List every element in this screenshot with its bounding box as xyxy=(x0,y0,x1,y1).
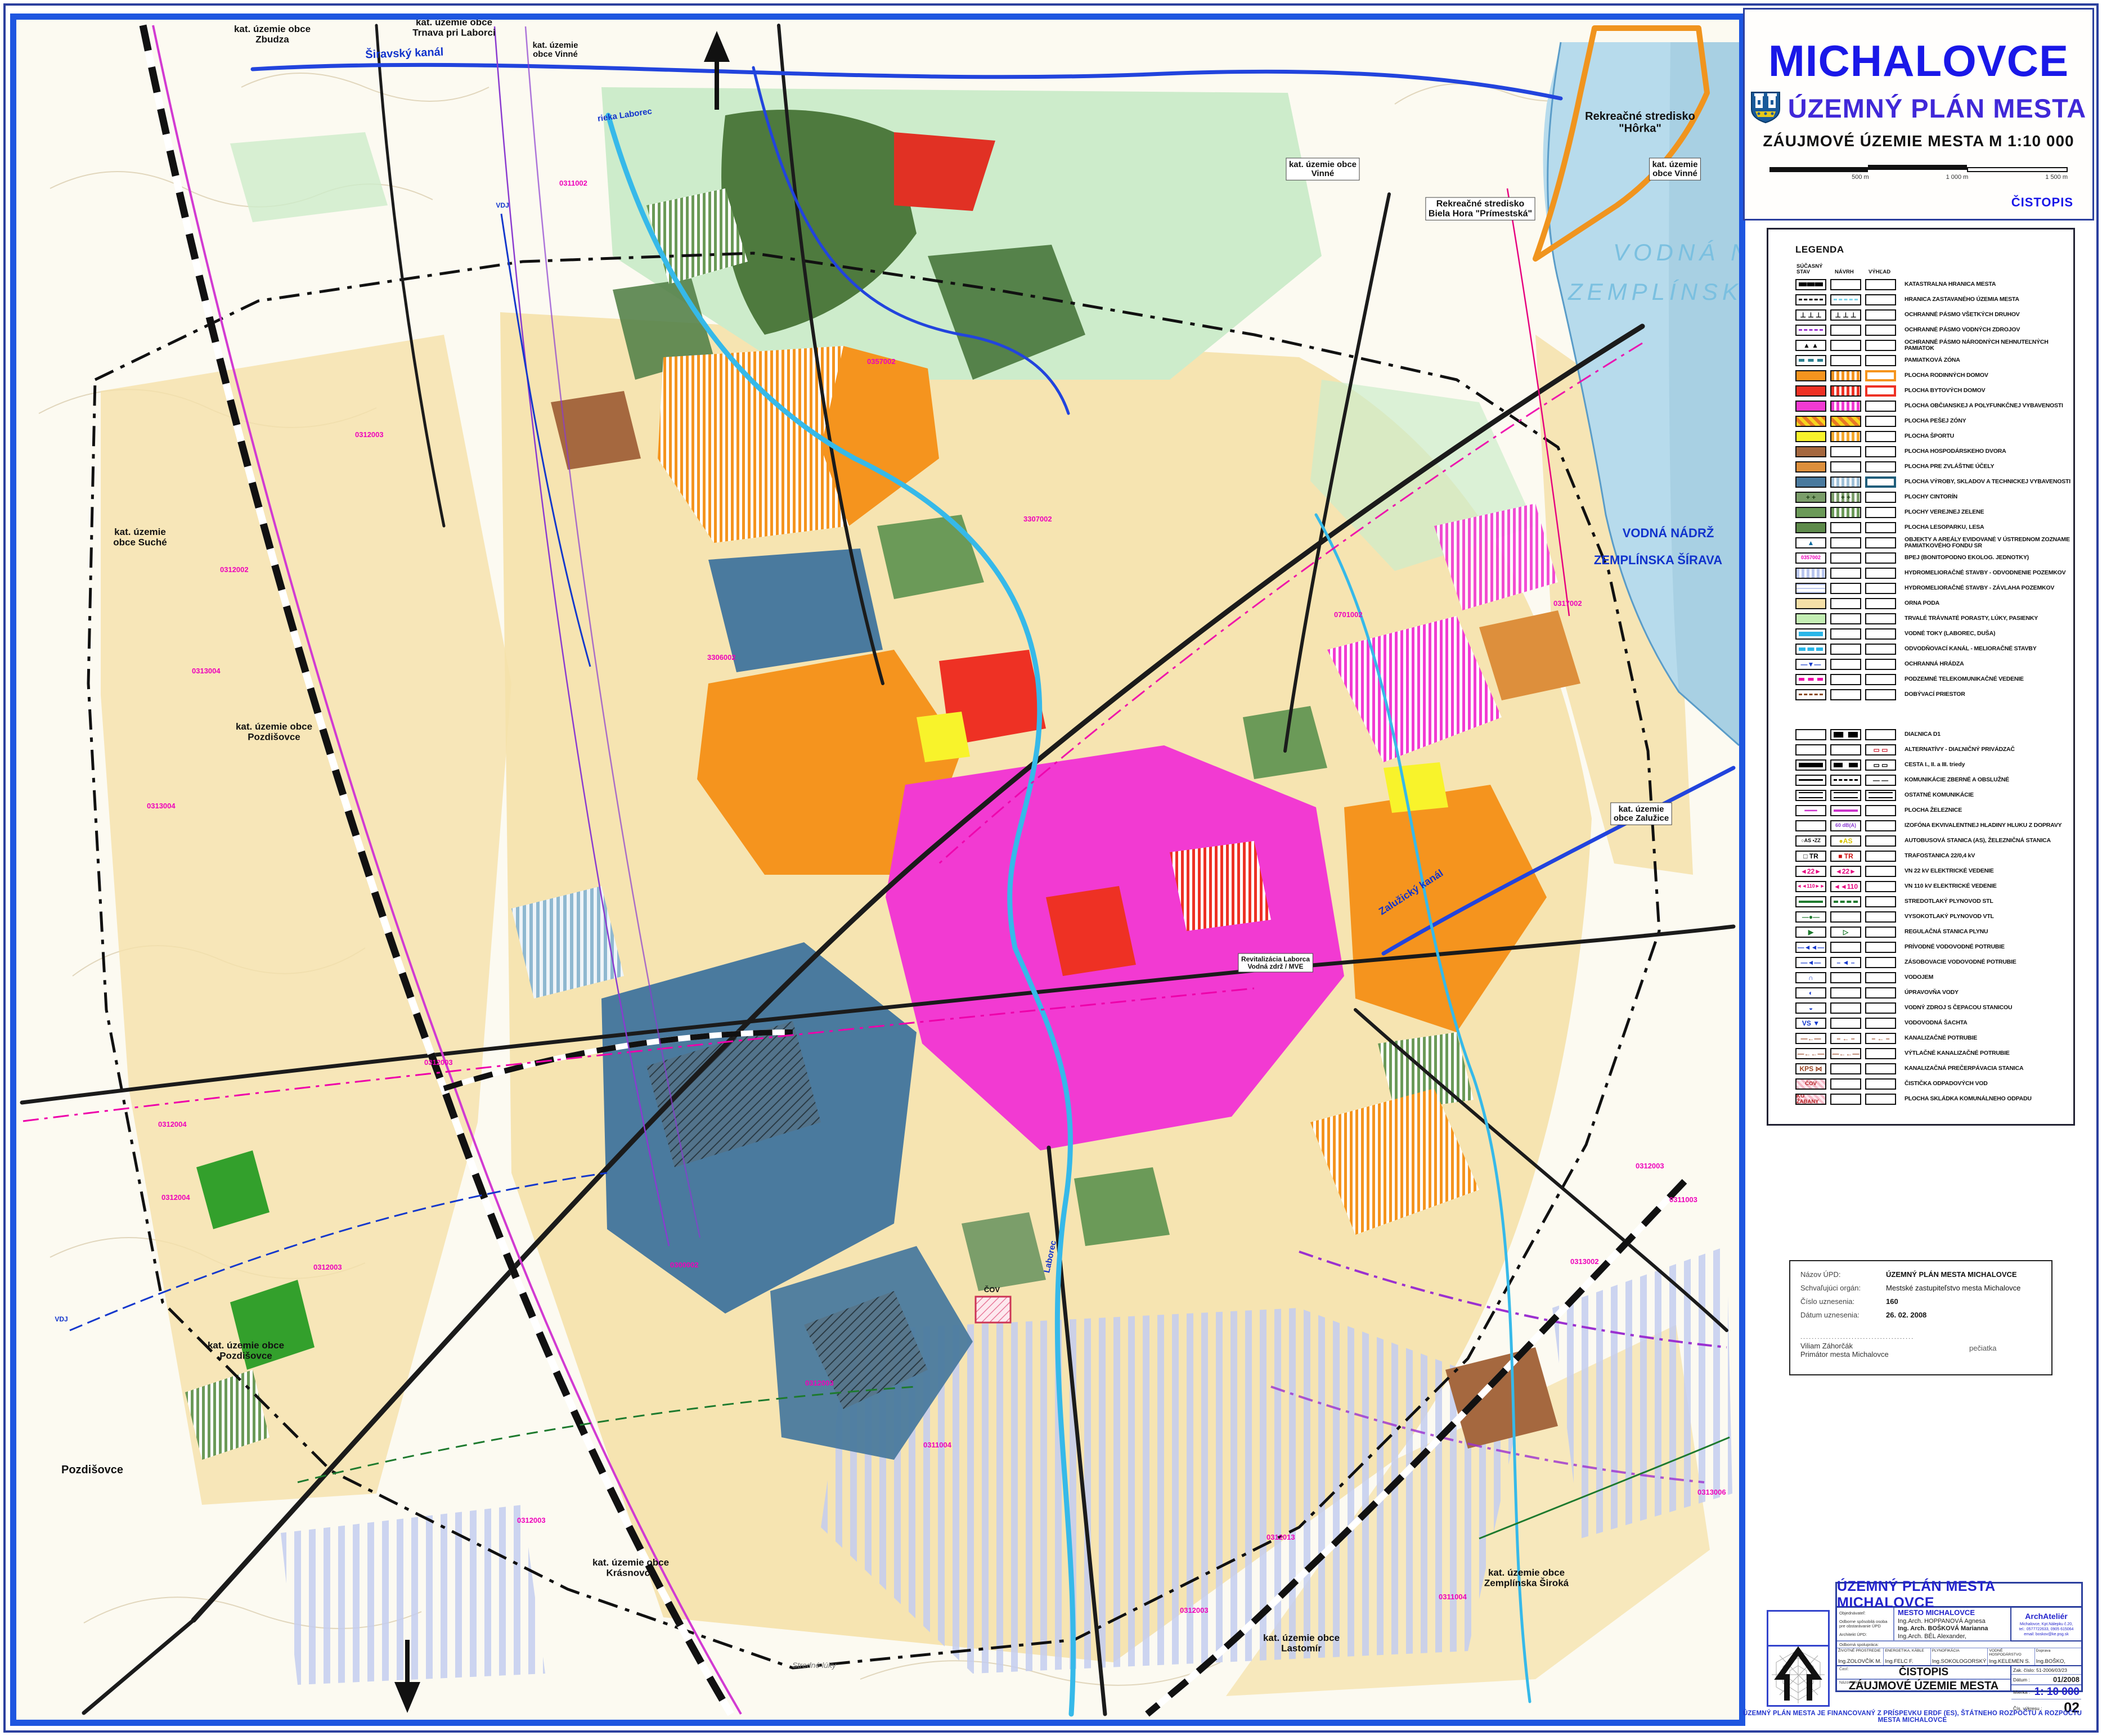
map-label: ČOV xyxy=(984,1285,1000,1294)
legend-row-label: VN 110 kV ELEKTRICKÉ VEDENIE xyxy=(1905,883,1997,889)
legend-swatch xyxy=(1830,729,1861,740)
legend-swatch: 0357002 xyxy=(1795,552,1826,564)
legend-row-label: VN 22 kV ELEKTRICKÉ VEDENIE xyxy=(1905,868,1994,874)
legend-swatch xyxy=(1865,851,1896,862)
map-label: kat. územieobce Vinné xyxy=(1652,160,1698,178)
legend-swatch: – ← – xyxy=(1865,1033,1896,1044)
bpej-code: 0313006 xyxy=(1697,1488,1726,1496)
legend-swatch: — — xyxy=(1865,775,1896,786)
firm-email: email: boskov@ke.psg.sk xyxy=(2014,1632,2079,1638)
datum-value: 01/2008 xyxy=(2053,1675,2079,1684)
architekt-name-2: Ing.Arch. BÉL Alexander, xyxy=(1898,1633,2010,1640)
legend-row-label: PLOCHY CINTORÍN xyxy=(1905,494,1957,500)
mierka-label: Mierka : xyxy=(2013,1689,2030,1695)
coop-name: Ing.SOKOLOGORSKÝ xyxy=(1932,1658,1987,1665)
coop-label: Odborná spolupráca: xyxy=(1837,1641,2081,1648)
legend-swatch: ━━━ xyxy=(1795,805,1826,816)
legend-swatch xyxy=(1830,805,1861,816)
legend-swatch: ▲ ▲ xyxy=(1795,340,1826,351)
coop-field: Doprava xyxy=(2036,1649,2080,1653)
legend-swatch: ○AS ▪ZZ xyxy=(1795,835,1826,847)
nazov-label: Názov výkresu : xyxy=(1839,1681,1867,1685)
legend-swatch: ■ TR xyxy=(1830,851,1861,862)
legend-row-label: OCHRANNÉ PÁSMO VODNÝCH ZDROJOV xyxy=(1905,327,2020,333)
legend-row: —◄—– ◄ –ZÁSOBOVACIE VODOVODNÉ POTRUBIE xyxy=(1768,955,2073,970)
legend-row-label: ALTERNATÍVY - DIAĽNIČNÝ PRIVÁDZAČ xyxy=(1905,746,2015,753)
legend-swatch xyxy=(1830,1063,1861,1074)
legend-swatch xyxy=(1865,279,1896,290)
status-label: ČISTOPIS xyxy=(1745,195,2073,210)
legend-row-label: VODOVODNÁ ŠACHTA xyxy=(1905,1020,1968,1026)
legend-swatch xyxy=(1830,476,1861,488)
coop-field: ŽIVOTNÉ PROSTREDIE xyxy=(1838,1649,1882,1653)
legend-swatch: 60 dB(A) xyxy=(1830,820,1861,831)
approval-box: Názov ÚPD:ÚZEMNÝ PLÁN MESTA MICHALOVCESc… xyxy=(1789,1260,2052,1375)
legend-swatch xyxy=(1795,507,1826,518)
coop-name: Ing.BOŠKO, xyxy=(2036,1658,2080,1665)
legend-swatch xyxy=(1865,729,1896,740)
legend-swatch xyxy=(1830,987,1861,999)
legend-row-label: CESTA I., II. a III. triedy xyxy=(1905,762,1965,768)
legend-swatch: KO ŽABANY xyxy=(1795,1094,1826,1105)
legend-row-label: PLOCHA HOSPODÁRSKEHO DVORA xyxy=(1905,448,2006,455)
zak-label: Zak. číslo: xyxy=(2013,1667,2035,1673)
bpej-code: 0317002 xyxy=(1553,599,1582,608)
legend-swatch xyxy=(1795,744,1826,755)
legend-swatch xyxy=(1865,896,1896,907)
legend-swatch xyxy=(1865,309,1896,321)
legend-line-rows: DIAĽNICA D1▭ ▭ALTERNATÍVY - DIAĽNIČNÝ PR… xyxy=(1768,727,2073,1107)
signature-name: Viliam Záhorčák xyxy=(1800,1342,2051,1350)
bpej-code: 0311003 xyxy=(1669,1195,1697,1204)
legend-swatch xyxy=(1830,431,1861,442)
bpej-code: 0312004 xyxy=(161,1193,190,1202)
legend-row-label: ODVODŇOVACÍ KANÁL - MELIORAČNÉ STAVBY xyxy=(1905,646,2037,652)
legend-row-label: PLOCHA LESOPARKU, LESA xyxy=(1905,524,1984,530)
legend-swatch: —◄— xyxy=(1795,957,1826,968)
legend-swatch xyxy=(1865,790,1896,801)
scale-segment xyxy=(1769,167,1868,172)
stamp-label: pečiatka xyxy=(1969,1344,1996,1352)
legend-row-label: PLOCHA ŠPORTU xyxy=(1905,433,1954,439)
legend-swatch xyxy=(1865,583,1896,594)
approval-row-value: 26. 02. 2008 xyxy=(1886,1311,1926,1319)
legend-row: DIAĽNICA D1 xyxy=(1768,727,2073,742)
legend-swatch xyxy=(1830,790,1861,801)
bpej-code: 0311004 xyxy=(923,1441,952,1449)
legend-row: ORNA PODA xyxy=(1768,596,2073,611)
legend-row-label: KANALIZAČNÉ POTRUBIE xyxy=(1905,1035,1977,1041)
legend-title: LEGENDA xyxy=(1795,244,2073,255)
legend-swatch xyxy=(1865,537,1896,548)
legend-row-label: VODNÝ ZDROJ S ČEPACOU STANICOU xyxy=(1905,1005,2012,1011)
legend-swatch xyxy=(1865,866,1896,877)
bpej-code: 0311002 xyxy=(559,179,587,187)
legend-swatch: ▲ xyxy=(1795,537,1826,548)
bpej-code: 0312003 xyxy=(517,1516,546,1524)
legend-swatch xyxy=(1830,340,1861,351)
legend-swatch xyxy=(1795,476,1826,488)
map-label: kat. územie obceTrnava pri Laborci xyxy=(412,20,495,38)
legend-row: + ++ +PLOCHY CINTORÍN xyxy=(1768,489,2073,505)
scale-segment xyxy=(1868,165,1966,170)
legend-swatch xyxy=(1830,507,1861,518)
legend-row-label: REGULAČNÁ STANICA PLYNU xyxy=(1905,929,1988,935)
legend-swatch xyxy=(1865,1063,1896,1074)
legend-swatch xyxy=(1830,598,1861,609)
map-label: kat. územieobce Zalužice xyxy=(1614,804,1669,823)
coop-cell: DopravaIng.BOŠKO, xyxy=(2035,1648,2081,1665)
legend-swatch xyxy=(1795,689,1826,700)
legend-swatch xyxy=(1865,1048,1896,1059)
legend-swatch xyxy=(1830,942,1861,953)
legend-row-label: HYDROMELIORAČNÉ STAVBY - ZÁVLAHA POZEMKO… xyxy=(1905,585,2054,591)
legend-row-label: HYDROMELIORAČNÉ STAVBY - ODVODNENIE POZE… xyxy=(1905,570,2065,576)
legend-swatch xyxy=(1830,628,1861,640)
legend-swatch xyxy=(1865,355,1896,366)
legend-swatch xyxy=(1865,613,1896,624)
legend-swatch xyxy=(1795,674,1826,685)
signature-line: ........................................ xyxy=(1800,1334,2051,1341)
legend-swatch xyxy=(1795,446,1826,457)
legend-row: ◒VODNÝ ZDROJ S ČEPACOU STANICOU xyxy=(1768,1000,2073,1015)
legend-swatch xyxy=(1865,492,1896,503)
legend-swatch xyxy=(1830,401,1861,412)
approval-row-label: Názov ÚPD: xyxy=(1800,1270,1886,1279)
legend-swatch: —●— xyxy=(1795,911,1826,923)
firm-phone: tel.: 0577722633, 0905 615064 xyxy=(2014,1627,2079,1632)
approval-row-label: Schvaľujúci orgán: xyxy=(1800,1284,1886,1292)
approval-row: Dátum uznesenia:26. 02. 2008 xyxy=(1800,1311,2051,1319)
legend-swatch xyxy=(1865,340,1896,351)
legend-col-navrh: NÁVRH xyxy=(1835,269,1854,275)
legend-swatch xyxy=(1865,385,1896,397)
legend-swatch xyxy=(1830,583,1861,594)
legend-row-label: PODZEMNÉ TELEKOMUNIKAČNÉ VEDENIE xyxy=(1905,676,2024,682)
legend-swatch: ∩ xyxy=(1795,972,1826,983)
map-label: kat. územieobce Suché xyxy=(113,527,167,547)
coop-name: Ing.KELEMEN S. xyxy=(1989,1658,2033,1665)
legend-swatch xyxy=(1865,659,1896,670)
legend-row: HYDROMELIORAČNÉ STAVBY - ZÁVLAHA POZEMKO… xyxy=(1768,581,2073,596)
legend-row-label: OCHRANNÉ PÁSMO NÁRODNÝCH NEHNUTEĽNÝCH PA… xyxy=(1905,339,2073,352)
legend-swatch xyxy=(1830,659,1861,670)
legend-swatch: + + xyxy=(1795,492,1826,503)
legend-row: ○AS ▪ZZ●ASAUTOBUSOVÁ STANICA (AS), ŽELEZ… xyxy=(1768,833,2073,848)
datum-label: Dátum : xyxy=(2013,1677,2030,1683)
legend-swatch xyxy=(1795,401,1826,412)
legend-swatch xyxy=(1830,744,1861,755)
map-label: VDJ xyxy=(496,201,509,209)
legend-swatch xyxy=(1830,1078,1861,1090)
drawing-name: ZÁUJMOVÉ ÚZEMIE MESTA xyxy=(1849,1680,1998,1693)
bpej-code: 0311004 xyxy=(1439,1593,1467,1601)
map-label: Revitalizácia LaborcaVodná zdrž / MVE xyxy=(1241,955,1310,970)
legend-row: ∩VODOJEM xyxy=(1768,970,2073,985)
legend-swatch xyxy=(1830,325,1861,336)
legend-swatch xyxy=(1795,598,1826,609)
firm-address: Michalovce, Kpt.Nálepku č.20, xyxy=(2014,1622,2079,1627)
legend-swatch xyxy=(1830,972,1861,983)
title-block: ÚZEMNÝ PLÁN MESTA MICHALOVCE Objednávate… xyxy=(1835,1582,2083,1692)
legend-swatch xyxy=(1865,522,1896,533)
legend-swatch xyxy=(1830,568,1861,579)
approval-row: Názov ÚPD:ÚZEMNÝ PLÁN MESTA MICHALOVCE xyxy=(1800,1270,2051,1279)
legend-swatch xyxy=(1865,1078,1896,1090)
legend-row-label: OSTATNÉ KOMUNIKÁCIE xyxy=(1905,792,1974,798)
legend-swatch xyxy=(1865,446,1896,457)
legend-row-label: TRAFOSTANICA 22/0,4 kV xyxy=(1905,853,1975,859)
legend-swatch xyxy=(1830,1094,1861,1105)
legend-row-label: AUTOBUSOVÁ STANICA (AS), ŽELEZNIČNÁ STAN… xyxy=(1905,838,2051,844)
legend-row: KO ŽABANYPLOCHA SKLÁDKA KOMUNÁLNEHO ODPA… xyxy=(1768,1091,2073,1107)
legend-row-label: VODNÉ TOKY (LABOREC, DUŠA) xyxy=(1905,631,1995,637)
legend-swatch xyxy=(1795,522,1826,533)
legend-swatch xyxy=(1830,689,1861,700)
legend-swatch xyxy=(1795,820,1826,831)
map-label: Rekreačné strediskoBiela Hora "Prímestsk… xyxy=(1429,199,1532,218)
legend-swatch: —←←— xyxy=(1830,1048,1861,1059)
legend-row-label: PRÍVODNÉ VODOVODNÉ POTRUBIE xyxy=(1905,944,2005,950)
map-label: VODNÁ N xyxy=(1613,239,1739,266)
plan-title: ÚZEMNÝ PLÁN MESTA xyxy=(1788,93,2087,124)
legend-swatch: – ◄ – xyxy=(1830,957,1861,968)
osoba-label: Odborne spôsobilá osoba pre obstarávanie… xyxy=(1839,1620,1892,1629)
legend-row: VODNÉ TOKY (LABOREC, DUŠA) xyxy=(1768,626,2073,641)
legend-row: — —KOMUNIKÁCIE ZBERNÉ A OBSLUŽNÉ xyxy=(1768,772,2073,788)
bpej-code: 0312003 xyxy=(1180,1606,1209,1614)
city-crest-icon xyxy=(1751,90,1780,127)
title-block-heading: ÚZEMNÝ PLÁN MESTA MICHALOVCE xyxy=(1837,1584,2081,1608)
legend-panel: LEGENDA SÚČASNÝ STAV NÁVRH VÝHĽAD KATAST… xyxy=(1767,228,2075,1126)
approval-row-label: Číslo uznesenia: xyxy=(1800,1297,1886,1306)
legend-swatch xyxy=(1830,613,1861,624)
legend-swatch: —◄◄— xyxy=(1795,942,1826,953)
sheet-subtitle: ZÁUJMOVÉ ÚZEMIE MESTA M 1:10 000 xyxy=(1745,132,2092,150)
legend-row-label: KATASTRALNA HRANICA MESTA xyxy=(1905,281,1996,287)
mierka-value: 1: 10 000 xyxy=(2034,1686,2079,1698)
legend-swatch xyxy=(1865,972,1896,983)
legend-swatch xyxy=(1830,674,1861,685)
legend-swatch: VS ▼ xyxy=(1795,1018,1826,1029)
legend-row: HYDROMELIORAČNÉ STAVBY - ODVODNENIE POZE… xyxy=(1768,565,2073,581)
legend-swatch xyxy=(1795,896,1826,907)
coop-field: VODNÉ HOSPODÁRSTVO xyxy=(1989,1649,2033,1657)
legend-swatch xyxy=(1865,644,1896,655)
legend-swatch xyxy=(1865,674,1896,685)
legend-row: —←—– ← –– ← –KANALIZAČNÉ POTRUBIE xyxy=(1768,1031,2073,1046)
zak-value: 51-2006/03/23 xyxy=(2036,1667,2067,1673)
bpej-code: 0312013 xyxy=(1266,1533,1295,1541)
legend-swatch xyxy=(1795,279,1826,290)
approval-row: Číslo uznesenia:160 xyxy=(1800,1297,2051,1306)
bpej-code: 0312003 xyxy=(805,1379,834,1387)
legend-swatch xyxy=(1795,416,1826,427)
coop-name: Ing.ZOLOVČÍK M. xyxy=(1838,1658,1882,1665)
bpej-code: 0312004 xyxy=(158,1120,187,1128)
legend-row: —←←——←←—VÝTLAČNÉ KANALIZAČNÉ POTRUBIE xyxy=(1768,1046,2073,1061)
client-name: MESTO MICHALOVCE xyxy=(1898,1608,2010,1617)
legend-swatch xyxy=(1830,552,1861,564)
legend-row-label: VÝTLAČNÉ KANALIZAČNÉ POTRUBIE xyxy=(1905,1050,2010,1056)
legend-swatch xyxy=(1865,957,1896,968)
legend-row: PLOCHA OBČIANSKEJ A POLYFUNKČNEJ VYBAVEN… xyxy=(1768,398,2073,413)
legend-row: ━━━PLOCHA ŽELEZNICE xyxy=(1768,803,2073,818)
legend-swatch xyxy=(1795,431,1826,442)
legend-swatch xyxy=(1795,355,1826,366)
scale-label: 500 m xyxy=(1769,174,1869,181)
legend-swatch: ČOV xyxy=(1795,1078,1826,1090)
legend-swatch xyxy=(1865,416,1896,427)
approval-row-label: Dátum uznesenia: xyxy=(1800,1311,1886,1319)
legend-swatch: —←— xyxy=(1795,1033,1826,1044)
legend-swatch: + + xyxy=(1830,492,1861,503)
legend-swatch xyxy=(1795,461,1826,473)
legend-swatch: □ TR xyxy=(1795,851,1826,862)
north-box-empty-cell xyxy=(1768,1612,1828,1647)
map-label: VDJ xyxy=(55,1315,68,1323)
scale-label: 1 000 m xyxy=(1869,174,1969,181)
legend-row-label: DOBÝVACÍ PRIESTOR xyxy=(1905,691,1965,698)
legend-row: HRANICA ZASTAVANÉHO ÚZEMIA MESTA xyxy=(1768,292,2073,307)
legend-row: PODZEMNÉ TELEKOMUNIKAČNÉ VEDENIE xyxy=(1768,672,2073,687)
legend-swatch xyxy=(1795,385,1826,397)
legend-swatch xyxy=(1865,805,1896,816)
legend-swatch xyxy=(1795,294,1826,305)
legend-row: PLOCHA ŠPORTU xyxy=(1768,429,2073,444)
map-label: VODNÁ NÁDRŽ xyxy=(1623,526,1714,540)
legend-row-label: HRANICA ZASTAVANÉHO ÚZEMIA MESTA xyxy=(1905,296,2019,303)
plan-sheet: kat. územie obceZbudzakat. územie obceTr… xyxy=(0,0,2102,1736)
legend-row: ▶▷REGULAČNÁ STANICA PLYNU xyxy=(1768,924,2073,939)
legend-swatch xyxy=(1830,537,1861,548)
map-label: ZEMPLÍNSKA xyxy=(1567,278,1739,305)
north-arrow-box xyxy=(1767,1610,1830,1707)
bpej-code: 0312003 xyxy=(313,1263,342,1271)
legend-swatch xyxy=(1865,927,1896,938)
coop-name: Ing.FELC F. xyxy=(1885,1658,1929,1665)
legend-row-label: PLOCHA OBČIANSKEJ A POLYFUNKČNEJ VYBAVEN… xyxy=(1905,403,2063,409)
architekt-name-1: Ing. Arch. BOŠKOVÁ Marianna xyxy=(1898,1625,2010,1632)
legend-row-label: PAMIATKOVÁ ZÓNA xyxy=(1905,357,1960,363)
coop-field: PLYNOFIKÁCIA xyxy=(1932,1649,1987,1653)
legend-swatch xyxy=(1830,759,1861,771)
legend-row: ▲ ▲OCHRANNÉ PÁSMO NÁRODNÝCH NEHNUTEĽNÝCH… xyxy=(1768,338,2073,353)
legend-swatch xyxy=(1830,911,1861,923)
legend-swatch xyxy=(1830,446,1861,457)
legend-row: OCHRANNÉ PÁSMO VODNÝCH ZDROJOV xyxy=(1768,322,2073,338)
legend-swatch xyxy=(1830,385,1861,397)
legend-swatch xyxy=(1865,325,1896,336)
legend-row: ODVODŇOVACÍ KANÁL - MELIORAČNÉ STAVBY xyxy=(1768,641,2073,656)
legend-row: STREDOTLAKÝ PLYNOVOD STL xyxy=(1768,894,2073,909)
legend-swatch xyxy=(1795,729,1826,740)
legend-row: —▼—OCHRANNÁ HRÁDZA xyxy=(1768,656,2073,672)
legend-swatch xyxy=(1865,835,1896,847)
coop-cell: PLYNOFIKÁCIAIng.SOKOLOGORSKÝ xyxy=(1931,1648,1988,1665)
legend-row: VS ▼VODOVODNÁ ŠACHTA xyxy=(1768,1015,2073,1031)
legend-row-label: STREDOTLAKÝ PLYNOVOD STL xyxy=(1905,898,1993,905)
bpej-code: 0312002 xyxy=(220,565,249,574)
map-area: kat. územie obceZbudzakat. územie obceTr… xyxy=(10,14,1745,1726)
legend-swatch xyxy=(1830,775,1861,786)
legend-row-label: IZOFÓNA EKVIVALENTNEJ HLADINY HLUKU Z DO… xyxy=(1905,822,2061,829)
legend-row-label: VODOJEM xyxy=(1905,974,1933,981)
legend-row-label: ÚPRAVOVŇA VODY xyxy=(1905,990,1959,996)
legend-swatch: ◐ xyxy=(1795,987,1826,999)
legend-swatch xyxy=(1830,522,1861,533)
legend-row-label: PLOCHY VEREJNEJ ZELENE xyxy=(1905,509,1984,515)
legend-swatch: ▭ ▭ xyxy=(1865,759,1896,771)
legend-row-label: PLOCHA RODINNÝCH DOMOV xyxy=(1905,372,1988,379)
legend-swatch xyxy=(1830,1018,1861,1029)
legend-row: ČOVČISTIČKA ODPADOVÝCH VOD xyxy=(1768,1076,2073,1091)
legend-swatch xyxy=(1830,416,1861,427)
legend-row-label: BPEJ (BONITOPODNO EKOLOG. JEDNOTKY) xyxy=(1905,555,2029,561)
cast-label: Časť: xyxy=(1839,1667,1849,1671)
north-arrow-icon xyxy=(1768,1647,1828,1703)
legend-swatch xyxy=(1865,628,1896,640)
legend-swatch: ●AS xyxy=(1830,835,1861,847)
bpej-code: 0313002 xyxy=(1570,1257,1599,1266)
legend-swatch xyxy=(1865,294,1896,305)
legend-row: ▭ ▭CESTA I., II. a III. triedy xyxy=(1768,757,2073,772)
legend-swatch xyxy=(1865,431,1896,442)
map-label: Stredné lúky xyxy=(792,1661,837,1670)
legend-swatch xyxy=(1795,613,1826,624)
legend-swatch xyxy=(1865,568,1896,579)
legend-row: PLOCHA PEŠEJ ZÓNY xyxy=(1768,413,2073,429)
legend-swatch xyxy=(1795,370,1826,381)
coop-field: ENERGETIKA, KÁBLE xyxy=(1885,1649,1929,1653)
legend-area-rows: KATASTRALNA HRANICA MESTAHRANICA ZASTAVA… xyxy=(1768,277,2073,702)
legend-swatch xyxy=(1795,583,1826,594)
legend-swatch xyxy=(1830,1002,1861,1014)
legend-swatch xyxy=(1865,461,1896,473)
legend-swatch xyxy=(1865,942,1896,953)
legend-swatch xyxy=(1830,461,1861,473)
legend-row: PLOCHA PRE ZVLÁŠTNE ÚČELY xyxy=(1768,459,2073,474)
approval-row: Schvaľujúci orgán:Mestské zastupiteľstvo… xyxy=(1800,1284,2051,1292)
bpej-code: 3307002 xyxy=(1023,515,1052,523)
legend-swatch: KPS ⋈ xyxy=(1795,1063,1826,1074)
legend-swatch xyxy=(1830,355,1861,366)
legend-swatch xyxy=(1830,294,1861,305)
legend-swatch xyxy=(1865,1094,1896,1105)
architekt-label: Architekt ÚPD: xyxy=(1839,1632,1892,1637)
legend-row-label: PLOCHA SKLÁDKA KOMUNÁLNEHO ODPADU xyxy=(1905,1096,2032,1102)
bpej-code: 0701002 xyxy=(1334,610,1363,619)
map-label: ZEMPLÍNSKA ŠÍRAVA xyxy=(1594,553,1722,567)
legend-swatch xyxy=(1865,476,1896,488)
legend-row: PLOCHA HOSPODÁRSKEHO DVORA xyxy=(1768,444,2073,459)
legend-row: 60 dB(A)IZOFÓNA EKVIVALENTNEJ HLADINY HL… xyxy=(1768,818,2073,833)
legend-swatch xyxy=(1830,644,1861,655)
legend-swatch xyxy=(1795,568,1826,579)
osoba-name: Ing.Arch. HOPPANOVÁ Agnesa xyxy=(1898,1618,2010,1625)
signature-block: ........................................… xyxy=(1800,1334,2051,1368)
legend-swatch: ▶ xyxy=(1795,927,1826,938)
map-canvas: kat. územie obceZbudzakat. územie obceTr… xyxy=(16,20,1739,1720)
legend-row-label: OCHRANNÁ HRÁDZA xyxy=(1905,661,1964,667)
map-label: kat. územieobce Vinné xyxy=(533,41,578,59)
legend-swatch: ▭ ▭ xyxy=(1865,744,1896,755)
legend-swatch xyxy=(1795,644,1826,655)
legend-row: ▲OBJEKTY A AREÁLY EVIDOVANÉ V ÚSTREDNOM … xyxy=(1768,535,2073,550)
legend-swatch: ⊥ ⊥ ⊥ xyxy=(1830,309,1861,321)
map-label: kat. územie obceZemplínska Široká xyxy=(1484,1567,1569,1588)
legend-swatch xyxy=(1830,279,1861,290)
